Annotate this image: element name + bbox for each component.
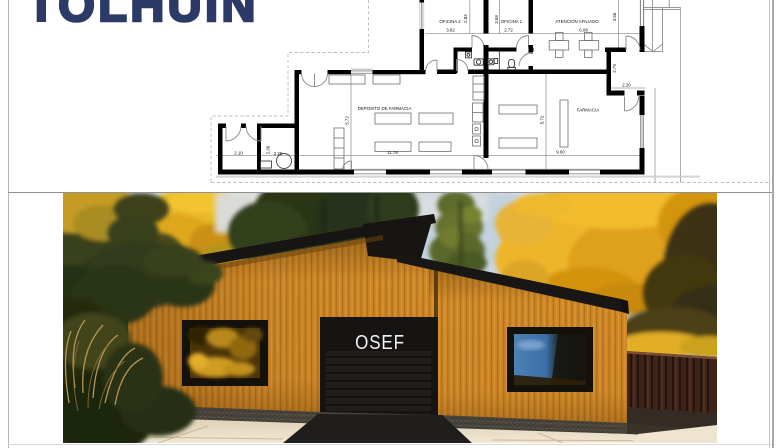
svg-text:2.30: 2.30 bbox=[266, 145, 271, 154]
svg-text:ATENCIÓN AFILIADO: ATENCIÓN AFILIADO bbox=[555, 19, 599, 24]
svg-text:2.10: 2.10 bbox=[234, 151, 243, 156]
svg-text:2.29: 2.29 bbox=[274, 151, 283, 156]
svg-text:OFICINA 1: OFICINA 1 bbox=[501, 19, 523, 24]
svg-text:5.72: 5.72 bbox=[345, 116, 350, 125]
svg-text:6.08: 6.08 bbox=[579, 28, 588, 33]
svg-text:11.78: 11.78 bbox=[387, 150, 398, 155]
svg-text:5.72: 5.72 bbox=[540, 115, 545, 124]
svg-text:9.60: 9.60 bbox=[556, 150, 565, 155]
svg-text:OSEF: OSEF bbox=[355, 331, 405, 354]
svg-text:OFICINA 2: OFICINA 2 bbox=[439, 19, 461, 24]
svg-text:2.20: 2.20 bbox=[622, 83, 631, 88]
svg-text:2.79: 2.79 bbox=[612, 64, 617, 73]
svg-text:2.83: 2.83 bbox=[463, 14, 468, 23]
svg-text:3.68: 3.68 bbox=[494, 15, 499, 24]
svg-text:FARMACIA: FARMACIA bbox=[577, 108, 600, 113]
svg-text:3.82: 3.82 bbox=[446, 28, 455, 33]
svg-text:DEPOSITO DE FARMACIA: DEPOSITO DE FARMACIA bbox=[358, 106, 412, 111]
svg-text:3.55: 3.55 bbox=[612, 12, 617, 21]
svg-text:2.72: 2.72 bbox=[504, 28, 513, 33]
